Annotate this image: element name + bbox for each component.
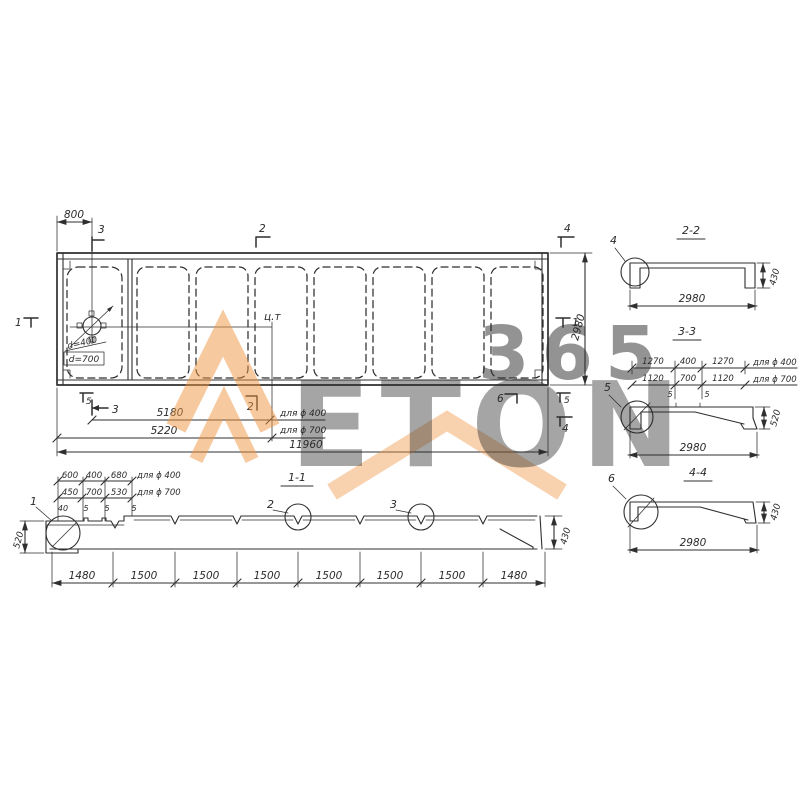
slab-drawing: d=400 d=700 ц.т 3 2 4 1 1 5 3 2 6 5 4 80… [0,0,800,800]
detail-2-label: 2 [267,498,274,511]
dim-5220-suffix: для ϕ 700 [279,426,327,436]
s11-dim-5a: 5 [83,504,88,513]
dim-5180: 5180 [157,407,184,419]
section-3-3-title: 3-3 [678,325,696,338]
mark-top-4: 4 [564,223,571,235]
mark-top-3: 3 [98,224,105,236]
mark-bottom-5-right: 5 [564,396,570,406]
section-1-1-title: 1-1 [288,471,306,484]
dim-5220: 5220 [151,425,178,437]
mark-bottom-5-left: 5 [86,397,92,407]
mark-bottom-6: 6 [497,393,504,405]
s11-dim-530: 530 [111,488,127,498]
detail-4-label: 4 [610,234,617,247]
s11-dim-680: 680 [111,471,127,481]
mark-bottom-3: 3 [112,404,119,416]
s22-width-2980: 2980 [679,293,706,305]
chain-1500-f: 1500 [439,570,466,582]
s33-dim-5b: 5 [704,390,709,399]
chain-1480-b: 1480 [501,570,528,582]
mark-bottom-2: 2 [247,401,254,413]
section-4-4-title: 4-4 [689,466,707,479]
s33-dim-1120-a: 1120 [642,374,664,384]
chain-1500-d: 1500 [316,570,343,582]
s33-dim-1270-a: 1270 [642,357,664,367]
s11-suffix-400: для ϕ 400 [136,471,181,481]
s11-dim-40: 40 [58,504,68,513]
paper-background [0,0,800,800]
mark-top-2: 2 [259,223,266,235]
s33-suffix-700: для ϕ 700 [752,375,797,385]
s11-dim-5b: 5 [104,504,109,513]
s11-suffix-700: для ϕ 700 [136,488,181,498]
s11-dim-5c: 5 [131,504,136,513]
dim-800: 800 [64,209,84,221]
s33-dim-1270-b: 1270 [712,357,734,367]
s11-dim-700: 700 [86,488,102,498]
drawing-page: d=400 d=700 ц.т 3 2 4 1 1 5 3 2 6 5 4 80… [0,0,800,800]
detail-5-label: 5 [604,381,611,394]
s33-width-2980: 2980 [680,442,707,454]
dim-11960: 11960 [289,439,323,451]
s33-dim-1120-b: 1120 [712,374,734,384]
chain-1500-a: 1500 [131,570,158,582]
s33-suffix-400: для ϕ 400 [752,358,797,368]
s11-dim-400: 400 [86,471,102,481]
detail-3-label: 3 [390,498,397,511]
s33-dim-700: 700 [680,374,696,384]
dim-5180-suffix: для ϕ 400 [279,409,327,419]
section-2-2-title: 2-2 [682,224,700,237]
s11-dim-450: 450 [62,488,78,498]
detail-6-label: 6 [608,472,615,485]
s11-dim-600: 600 [62,471,78,481]
s44-width-2980: 2980 [680,537,707,549]
s33-dim-400: 400 [680,357,696,367]
chain-1500-e: 1500 [377,570,404,582]
hole-d700-label: d=700 [69,355,100,365]
cg-label: ц.т [264,311,281,323]
s33-dim-5a: 5 [667,390,672,399]
mark-bottom-4: 4 [562,423,569,435]
mark-left-1: 1 [15,317,22,329]
detail-1-label: 1 [30,495,37,508]
chain-1500-c: 1500 [254,570,281,582]
chain-1500-b: 1500 [193,570,220,582]
chain-1480-a: 1480 [69,570,96,582]
